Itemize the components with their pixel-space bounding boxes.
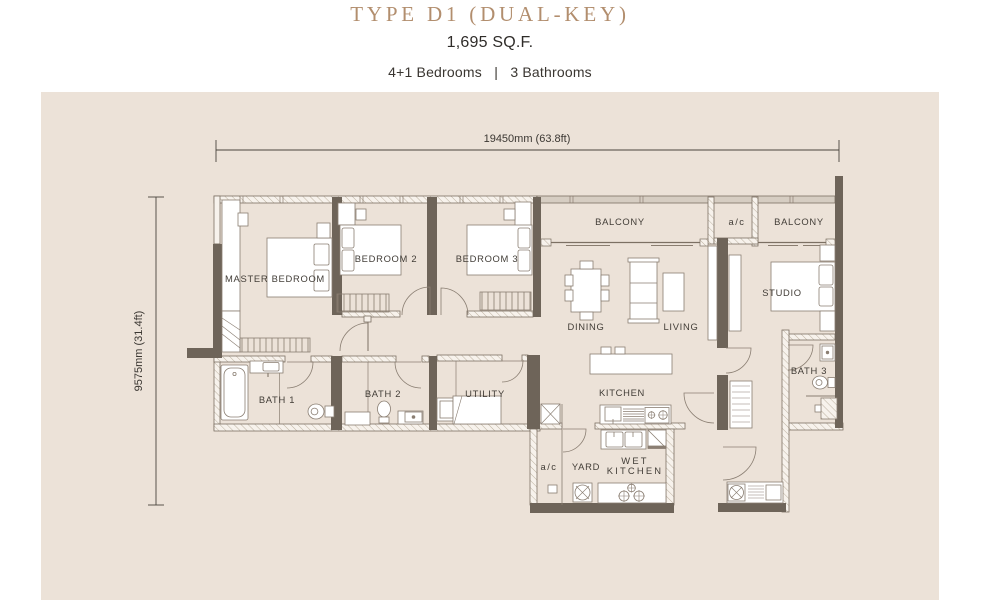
svg-text:BATH 2: BATH 2 <box>365 388 401 399</box>
svg-text:BATH 3: BATH 3 <box>791 365 827 376</box>
svg-text:BEDROOM 2: BEDROOM 2 <box>355 253 418 264</box>
svg-text:KITCHEN: KITCHEN <box>599 387 645 398</box>
svg-text:19450mm (63.8ft): 19450mm (63.8ft) <box>484 133 571 145</box>
svg-text:BEDROOM 3: BEDROOM 3 <box>456 253 519 264</box>
svg-text:UTILITY: UTILITY <box>465 388 505 399</box>
svg-text:MASTER BEDROOM: MASTER BEDROOM <box>225 273 325 284</box>
svg-text:1,695 SQ.F.: 1,695 SQ.F. <box>447 34 534 51</box>
svg-text:9575mm (31.4ft): 9575mm (31.4ft) <box>133 311 145 392</box>
svg-text:BATH 1: BATH 1 <box>259 394 295 405</box>
svg-text:BALCONY: BALCONY <box>595 216 645 227</box>
svg-text:BALCONY: BALCONY <box>774 216 824 227</box>
svg-text:a/c: a/c <box>540 461 557 472</box>
svg-text:LIVING: LIVING <box>664 321 699 332</box>
svg-text:4+1 Bedrooms | 3 Bathrooms: 4+1 Bedrooms | 3 Bathrooms <box>388 64 592 80</box>
svg-text:KITCHEN: KITCHEN <box>607 465 664 476</box>
svg-text:DINING: DINING <box>567 321 604 332</box>
svg-text:STUDIO: STUDIO <box>762 287 802 298</box>
svg-text:YARD: YARD <box>572 461 600 472</box>
svg-text:a/c: a/c <box>728 216 745 227</box>
svg-text:TYPE D1 (DUAL-KEY): TYPE D1 (DUAL-KEY) <box>350 2 630 26</box>
